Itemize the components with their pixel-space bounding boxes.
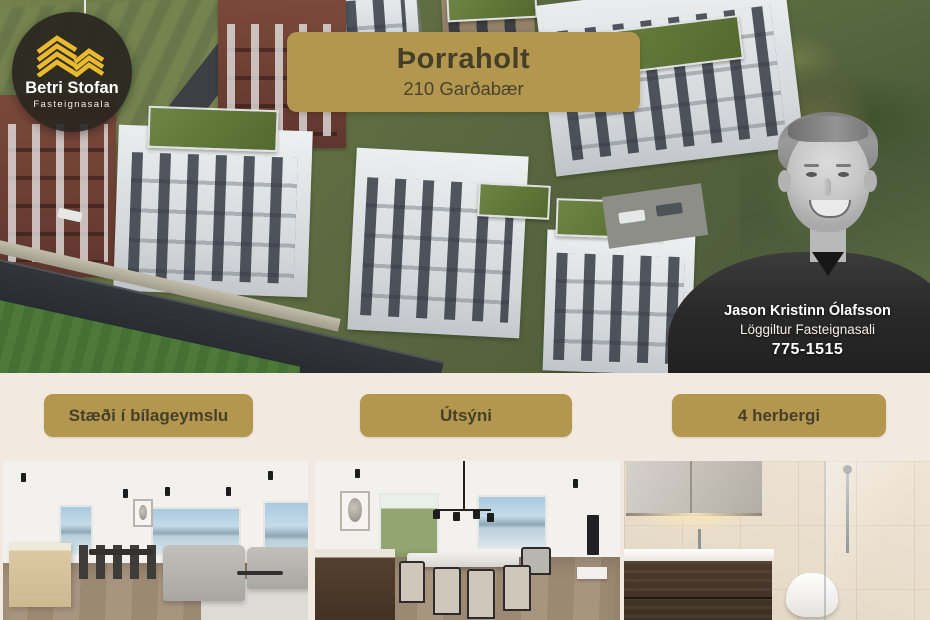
feature-button-rooms[interactable]: 4 herbergi — [672, 394, 886, 437]
photo-dining-room — [315, 461, 620, 620]
media-shelf — [577, 567, 607, 579]
coffee-table — [237, 571, 283, 575]
sofa — [163, 545, 245, 601]
agent-info: Jason Kristinn Ólafsson Löggiltur Fastei… — [685, 302, 930, 360]
agent-ear — [864, 170, 877, 192]
ceiling-spotlight — [21, 473, 26, 482]
feature-button-parking[interactable]: Stæði í bílageymslu — [44, 394, 253, 437]
feature-button-view[interactable]: Útsýni — [360, 394, 572, 437]
gold-chevrons-icon — [35, 35, 109, 77]
feature-label: 4 herbergi — [738, 406, 820, 426]
ceiling-spotlight — [226, 487, 231, 496]
ceiling-spotlight — [573, 479, 578, 488]
feature-label: Stæði í bílageymslu — [69, 406, 229, 426]
agent-eyebrow — [804, 164, 819, 167]
vanity-countertop — [624, 549, 774, 561]
pendant-lamp — [463, 461, 465, 509]
kitchen-island — [9, 543, 71, 607]
brand-tagline: Fasteignasala — [33, 99, 110, 110]
agent-nose — [823, 178, 831, 196]
window-view — [477, 495, 547, 549]
hero-aerial-photo: Jason Kristinn Ólafsson Löggiltur Fastei… — [0, 0, 930, 373]
property-address: 210 Garðabær — [403, 78, 523, 100]
brand-name: Betri Stofan — [25, 79, 119, 98]
ceiling-spotlight — [123, 489, 128, 498]
brand-logo: Betri Stofan Fasteignasala — [12, 12, 132, 132]
pendant-lamp — [435, 509, 491, 511]
pendant-bulb — [473, 510, 480, 519]
flagpole — [84, 0, 86, 14]
dining-table — [89, 549, 153, 555]
agent-hair-fringe — [788, 116, 868, 142]
dining-chair — [503, 565, 531, 611]
agent-ear — [778, 170, 791, 192]
green-roof — [147, 106, 278, 153]
car — [618, 209, 645, 224]
building — [347, 148, 528, 339]
vanity-cabinet — [624, 561, 772, 620]
building — [113, 125, 313, 298]
ceiling-spotlight — [355, 469, 360, 478]
dining-chair — [433, 567, 461, 615]
pendant-bulb — [453, 512, 460, 521]
agent-title: Löggiltur Fasteignasali — [685, 321, 930, 339]
agent-eye — [806, 172, 817, 177]
agent-phone: 775-1515 — [685, 339, 930, 360]
dining-chair — [467, 569, 495, 619]
photo-bathroom — [624, 461, 930, 620]
wall-art — [340, 491, 370, 531]
tv — [587, 515, 599, 555]
wall-art — [133, 499, 153, 527]
green-roof — [477, 182, 551, 220]
feature-label: Útsýni — [440, 406, 492, 426]
glass-sheen — [824, 461, 930, 620]
kitchen-counter — [315, 549, 395, 620]
pendant-bulb — [487, 513, 494, 522]
ceiling-spotlight — [268, 471, 273, 480]
dining-chair — [399, 561, 425, 603]
real-estate-flyer: Jason Kristinn Ólafsson Löggiltur Fastei… — [0, 0, 930, 620]
sofa — [247, 547, 308, 589]
pendant-bulb — [433, 510, 440, 519]
agent-name: Jason Kristinn Ólafsson — [685, 302, 930, 321]
property-name: Þorraholt — [397, 44, 530, 74]
mirror-cabinet — [626, 461, 762, 516]
photo-living-room — [3, 461, 308, 620]
ceiling-spotlight — [165, 487, 170, 496]
agent-eye — [838, 172, 849, 177]
property-banner: Þorraholt 210 Garðabær — [287, 32, 640, 112]
agent-eyebrow — [836, 164, 851, 167]
faucet — [698, 529, 701, 551]
under-cabinet-light — [626, 513, 762, 535]
